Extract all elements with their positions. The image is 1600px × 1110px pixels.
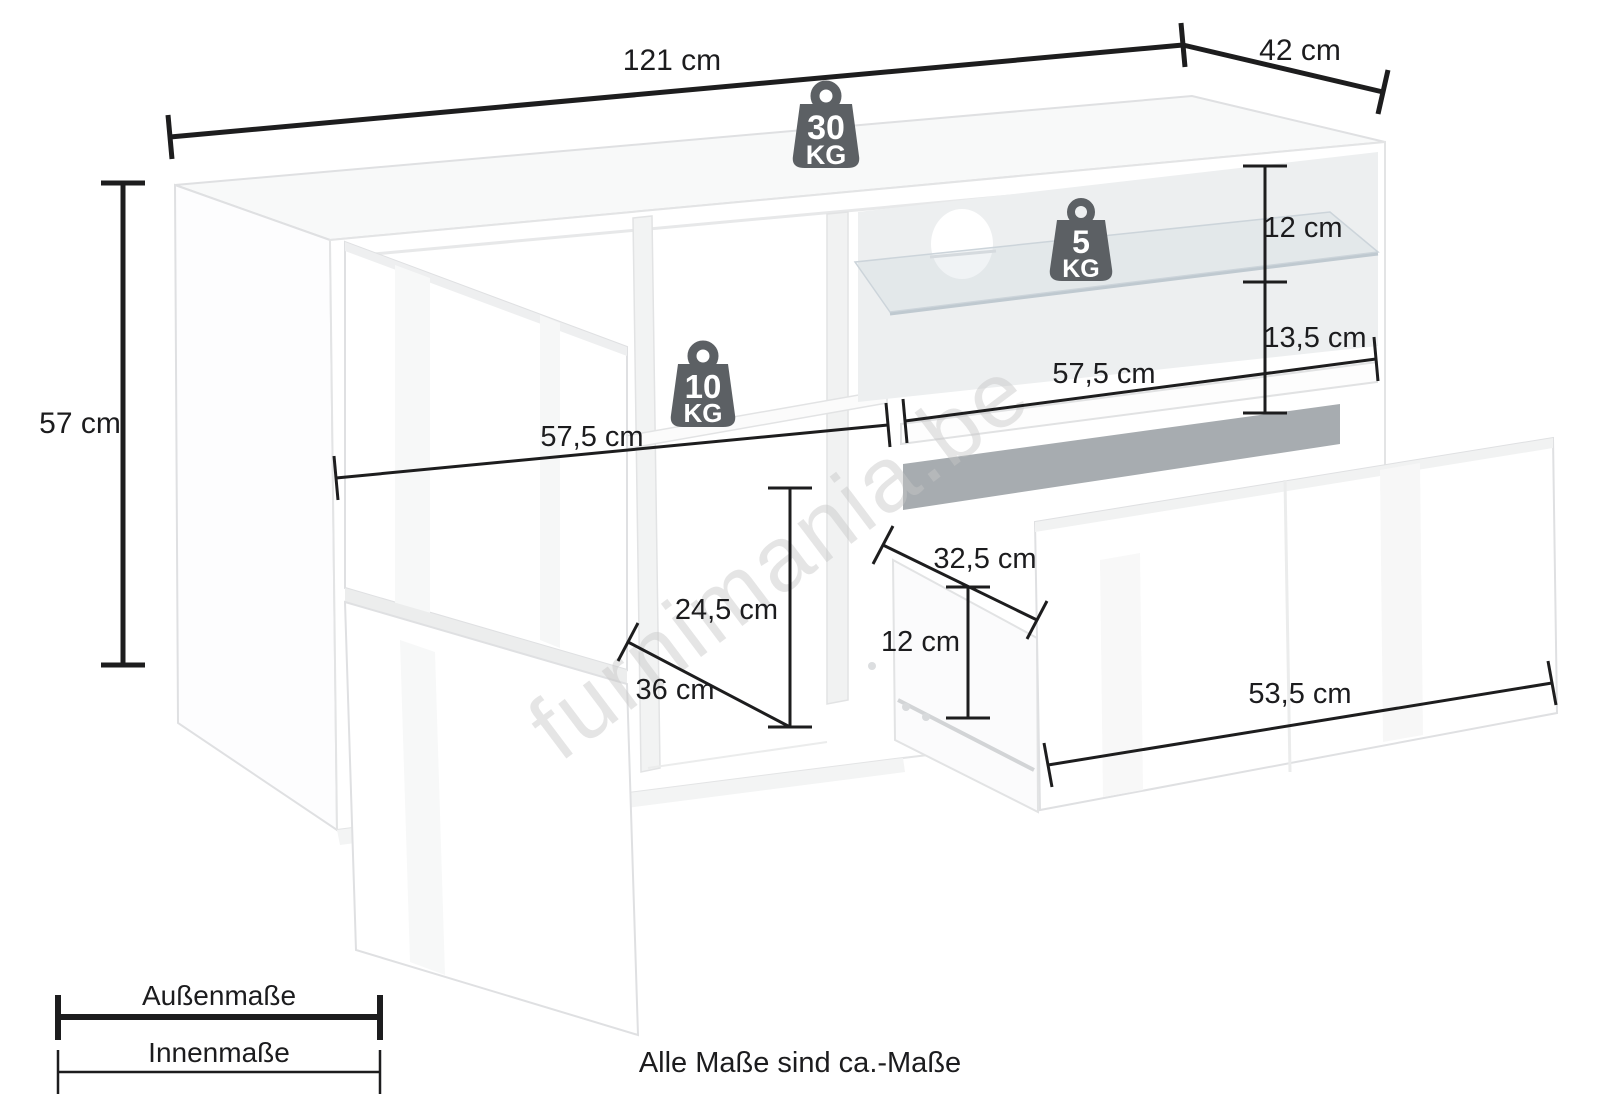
carcass-screw xyxy=(868,662,876,670)
label-inner-height-left: 24,5 cm xyxy=(675,594,778,626)
weight-5kg-unit: KG xyxy=(1062,255,1100,283)
label-total-depth: 42 cm xyxy=(1259,34,1341,67)
cabinet-left-panel xyxy=(175,185,337,830)
diagram-svg: furnimania.be 30 KG 5 KG 10 KG xyxy=(0,0,1600,1110)
label-drawer-width: 53,5 cm xyxy=(1248,678,1351,710)
weight-10kg-unit: KG xyxy=(684,398,723,428)
weight-30kg-ring xyxy=(815,85,837,107)
label-drawer-height: 12 cm xyxy=(881,626,960,658)
weight-30kg-icon: 30 KG xyxy=(793,85,860,170)
label-total-width: 121 cm xyxy=(623,44,721,77)
furniture-dimension-diagram: furnimania.be 30 KG 5 KG 10 KG xyxy=(0,0,1600,1110)
approx-note: Alle Maße sind ca.-Maße xyxy=(639,1047,961,1079)
label-inner-depth-left: 36 cm xyxy=(636,674,715,706)
furniture-drawing xyxy=(175,96,1557,1035)
legend-inner-label: Innenmaße xyxy=(148,1037,290,1068)
label-total-height: 57 cm xyxy=(39,407,121,440)
drawer-screw-2 xyxy=(922,713,930,721)
legend: Außenmaße Innenmaße xyxy=(58,980,380,1094)
label-glass-lower: 13,5 cm xyxy=(1263,322,1366,354)
label-inner-width-right: 57,5 cm xyxy=(1052,358,1155,390)
drawer-front-reflection-2 xyxy=(1380,463,1423,742)
drawer-front-reflection xyxy=(1100,553,1143,797)
drawer-screw-1 xyxy=(902,703,910,711)
door-upper-reflection xyxy=(395,265,430,620)
door-upper-reflection-2 xyxy=(540,315,560,648)
weight-30kg-unit: KG xyxy=(806,140,847,170)
label-drawer-depth: 32,5 cm xyxy=(933,543,1036,575)
legend-outer-label: Außenmaße xyxy=(142,980,296,1011)
label-inner-width-left: 57,5 cm xyxy=(540,421,643,453)
label-glass-upper: 12 cm xyxy=(1264,212,1343,244)
